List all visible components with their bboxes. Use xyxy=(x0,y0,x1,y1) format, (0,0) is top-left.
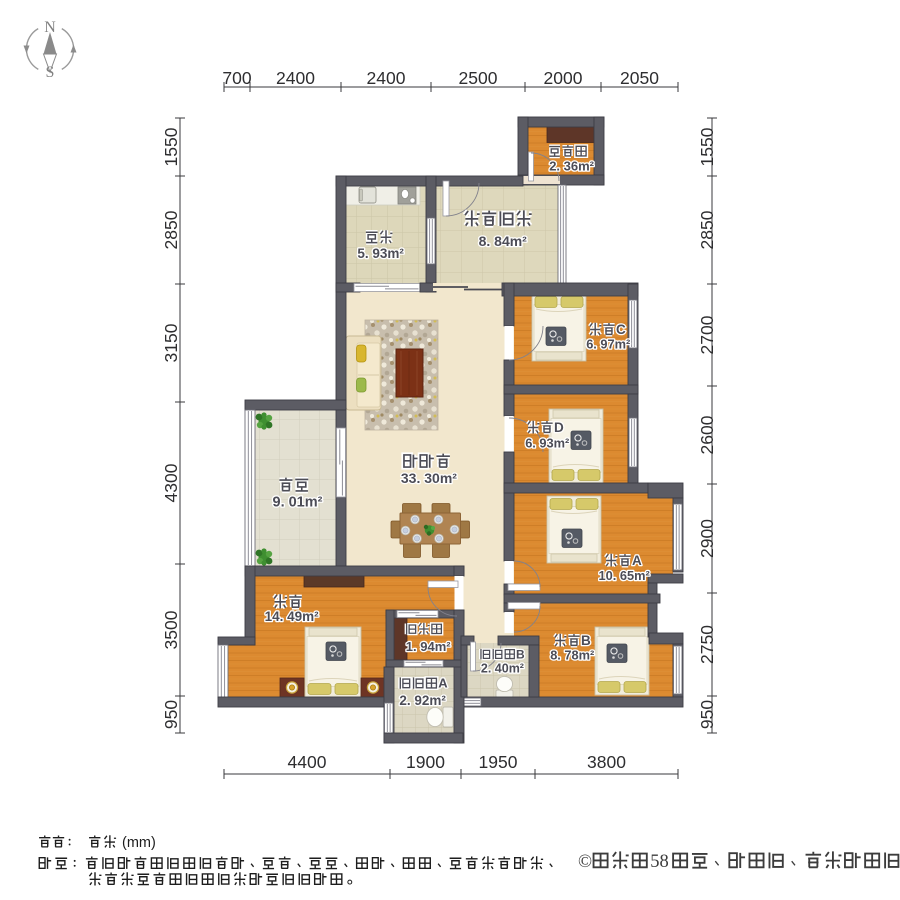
svg-text:A: A xyxy=(438,676,448,691)
svg-text:(mm): (mm) xyxy=(122,835,156,851)
svg-text:950: 950 xyxy=(161,700,181,729)
svg-text:A: A xyxy=(632,553,642,568)
svg-text:950: 950 xyxy=(697,700,717,729)
svg-text:58: 58 xyxy=(650,852,669,872)
svg-text:700: 700 xyxy=(222,68,251,88)
svg-text:B: B xyxy=(581,633,591,648)
svg-text:1550: 1550 xyxy=(161,127,181,166)
svg-text:6. 93m²: 6. 93m² xyxy=(525,435,569,450)
svg-text:N: N xyxy=(44,19,56,36)
svg-text:2500: 2500 xyxy=(459,68,498,88)
svg-text:3800: 3800 xyxy=(587,752,626,772)
svg-text:9. 01m²: 9. 01m² xyxy=(273,495,323,511)
svg-text:4400: 4400 xyxy=(288,752,327,772)
svg-text:2750: 2750 xyxy=(697,625,717,664)
svg-text:14. 49m²: 14. 49m² xyxy=(265,609,320,624)
svg-text:1950: 1950 xyxy=(479,752,518,772)
svg-text:3150: 3150 xyxy=(161,323,181,362)
svg-text:8. 78m²: 8. 78m² xyxy=(550,647,594,662)
svg-text:10. 65m²: 10. 65m² xyxy=(599,568,650,583)
svg-text:8. 84m²: 8. 84m² xyxy=(479,233,528,249)
svg-text:2400: 2400 xyxy=(367,68,406,88)
svg-text:6. 97m²: 6. 97m² xyxy=(586,336,630,351)
svg-text:2700: 2700 xyxy=(697,315,717,354)
svg-text:2. 36m²: 2. 36m² xyxy=(549,158,594,173)
svg-text:1900: 1900 xyxy=(406,752,445,772)
svg-text:B: B xyxy=(516,647,525,661)
svg-text:2900: 2900 xyxy=(697,519,717,558)
svg-text:33. 30m²: 33. 30m² xyxy=(401,470,457,486)
svg-text:2850: 2850 xyxy=(697,210,717,249)
svg-text:1. 94m²: 1. 94m² xyxy=(406,639,451,654)
svg-text:2050: 2050 xyxy=(620,68,659,88)
svg-text:2400: 2400 xyxy=(276,68,315,88)
svg-text:1550: 1550 xyxy=(697,127,717,166)
svg-text:2. 40m²: 2. 40m² xyxy=(481,661,524,675)
svg-text:©: © xyxy=(578,852,592,872)
svg-text:2. 92m²: 2. 92m² xyxy=(399,693,446,708)
svg-text:5. 93m²: 5. 93m² xyxy=(357,246,404,261)
svg-text:C: C xyxy=(616,322,626,337)
svg-text:4300: 4300 xyxy=(161,463,181,502)
svg-text:D: D xyxy=(554,420,564,435)
svg-text:2600: 2600 xyxy=(697,415,717,454)
svg-text:2850: 2850 xyxy=(161,210,181,249)
svg-text:2000: 2000 xyxy=(544,68,583,88)
svg-text:S: S xyxy=(46,64,55,81)
svg-text:3500: 3500 xyxy=(161,610,181,649)
